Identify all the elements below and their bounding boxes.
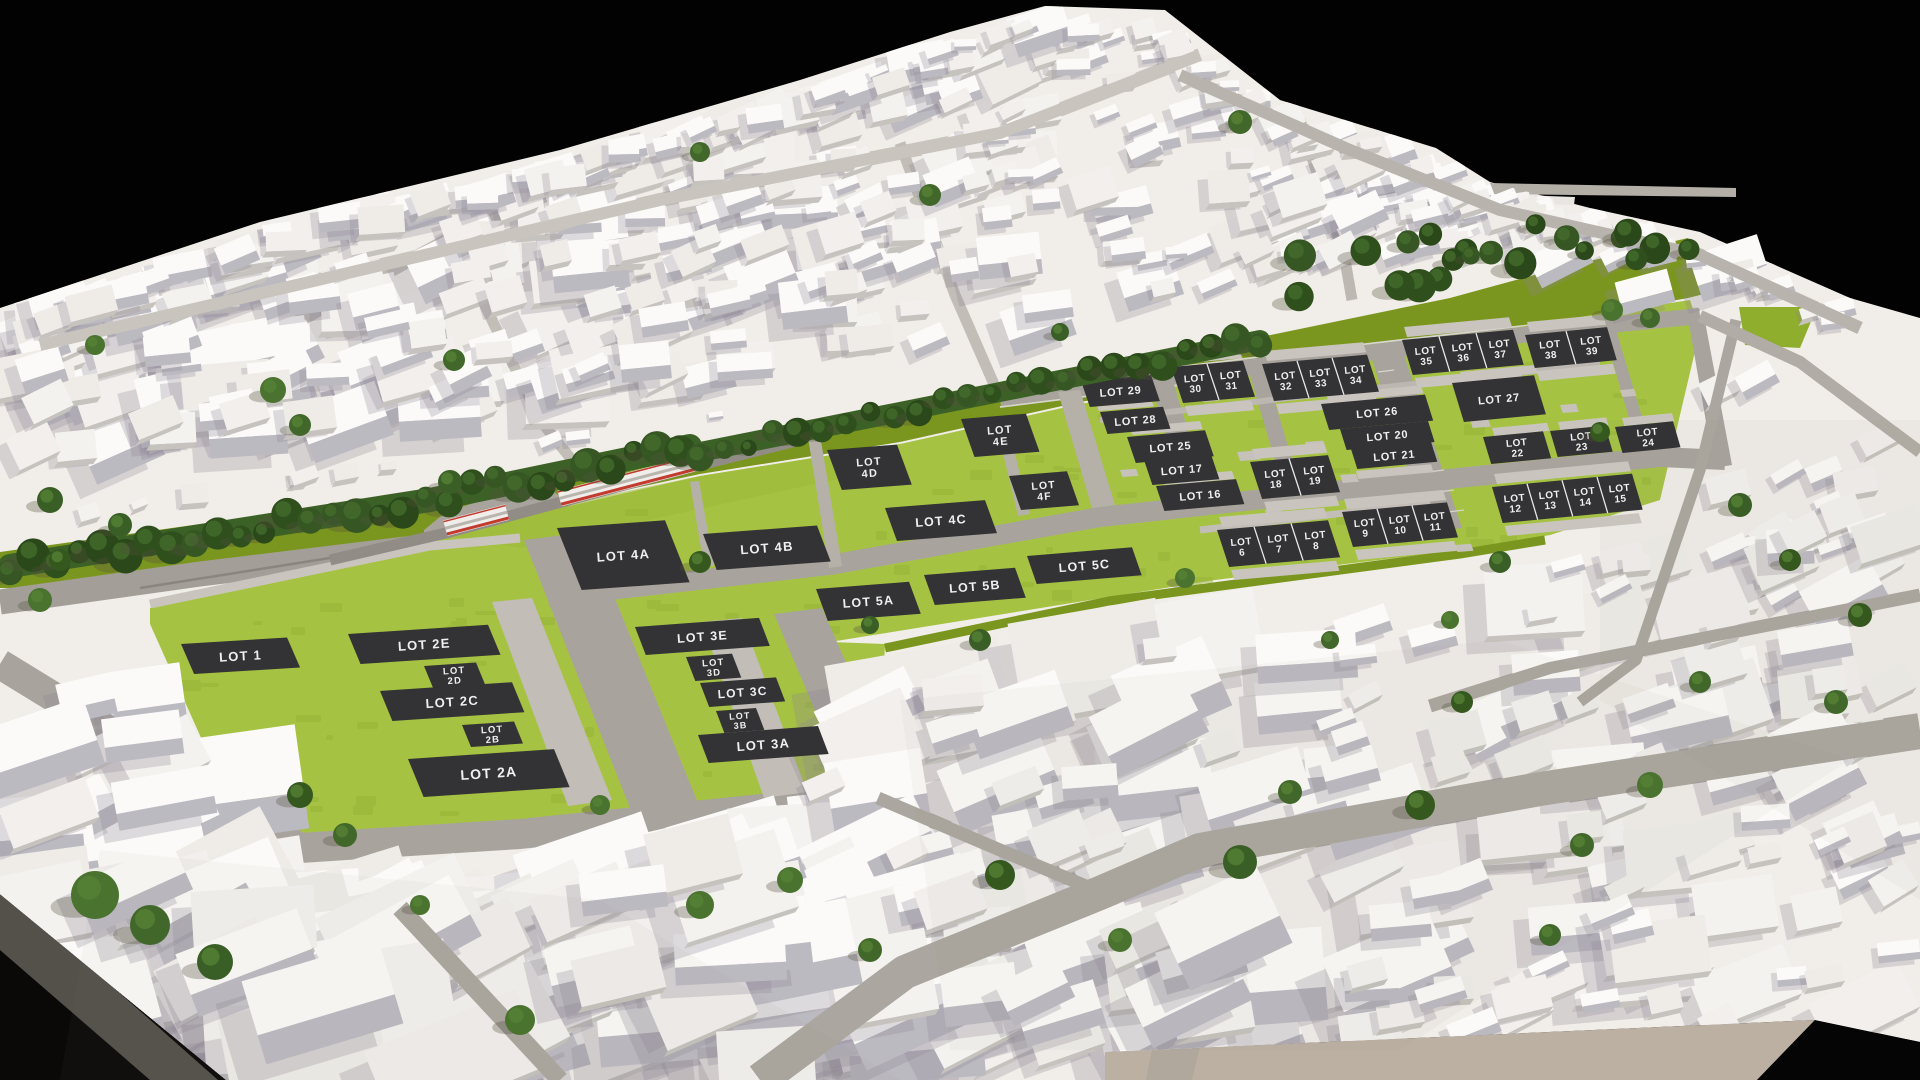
svg-text:2B: 2B [485,734,500,746]
svg-text:10: 10 [1394,525,1407,537]
svg-text:15: 15 [1614,494,1627,506]
svg-text:LOT 1: LOT 1 [219,647,263,665]
svg-text:35: 35 [1420,356,1433,368]
svg-text:7: 7 [1276,544,1283,555]
svg-text:34: 34 [1350,375,1363,387]
svg-text:38: 38 [1544,350,1557,362]
svg-text:9: 9 [1362,528,1369,540]
svg-text:8: 8 [1313,541,1320,552]
svg-text:19: 19 [1309,476,1322,488]
svg-text:12: 12 [1509,504,1522,516]
svg-text:32: 32 [1280,381,1293,393]
svg-text:4F: 4F [1037,490,1053,503]
svg-text:22: 22 [1511,448,1524,460]
svg-text:3D: 3D [706,667,721,679]
svg-text:30: 30 [1189,384,1202,396]
svg-text:39: 39 [1585,346,1598,358]
svg-text:24: 24 [1642,437,1655,449]
svg-text:4E: 4E [992,435,1009,448]
svg-text:14: 14 [1579,497,1592,509]
svg-text:33: 33 [1315,378,1328,390]
svg-text:37: 37 [1494,349,1507,361]
svg-text:18: 18 [1270,479,1283,491]
svg-text:23: 23 [1575,442,1588,454]
svg-text:31: 31 [1225,381,1238,393]
svg-text:6: 6 [1239,547,1246,558]
svg-text:11: 11 [1429,522,1442,534]
svg-text:3B: 3B [733,720,748,731]
svg-text:2D: 2D [447,675,462,687]
svg-text:13: 13 [1544,500,1557,512]
svg-text:36: 36 [1457,353,1470,365]
svg-text:4D: 4D [861,467,878,480]
